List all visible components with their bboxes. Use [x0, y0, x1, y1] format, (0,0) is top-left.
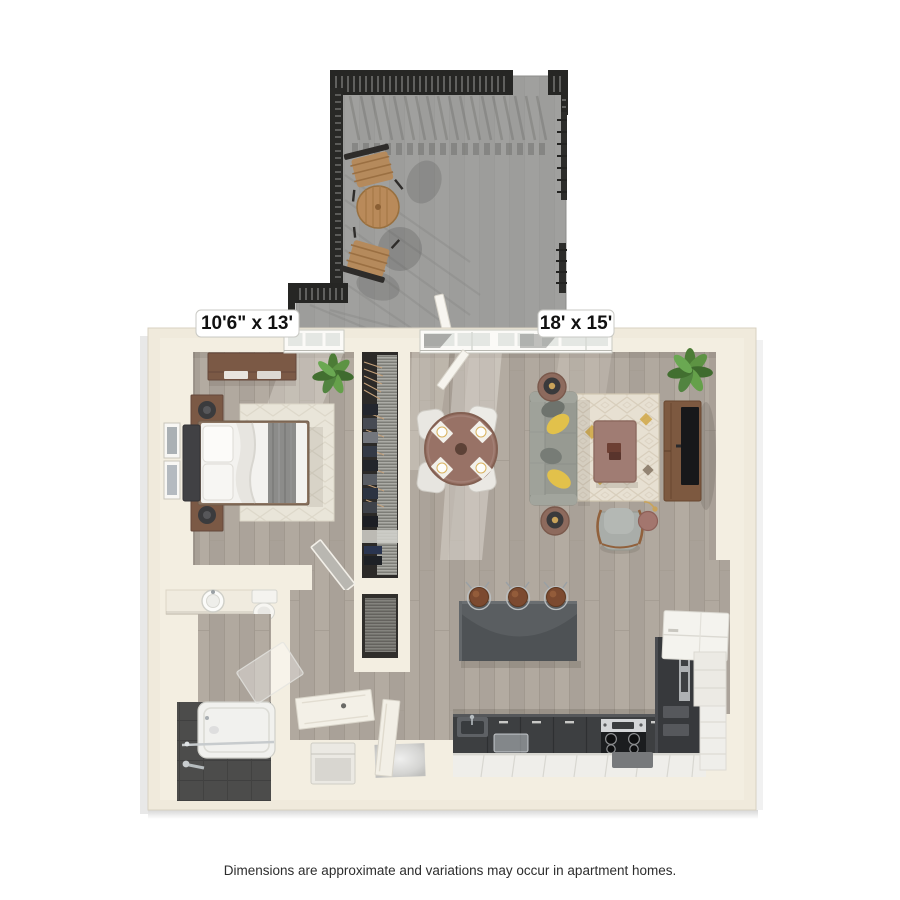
svg-text:10'6" x 13': 10'6" x 13': [201, 313, 293, 334]
svg-text:Dimensions are approximate and: Dimensions are approximate and variation…: [224, 863, 676, 878]
svg-text:18' x 15': 18' x 15': [540, 313, 612, 334]
